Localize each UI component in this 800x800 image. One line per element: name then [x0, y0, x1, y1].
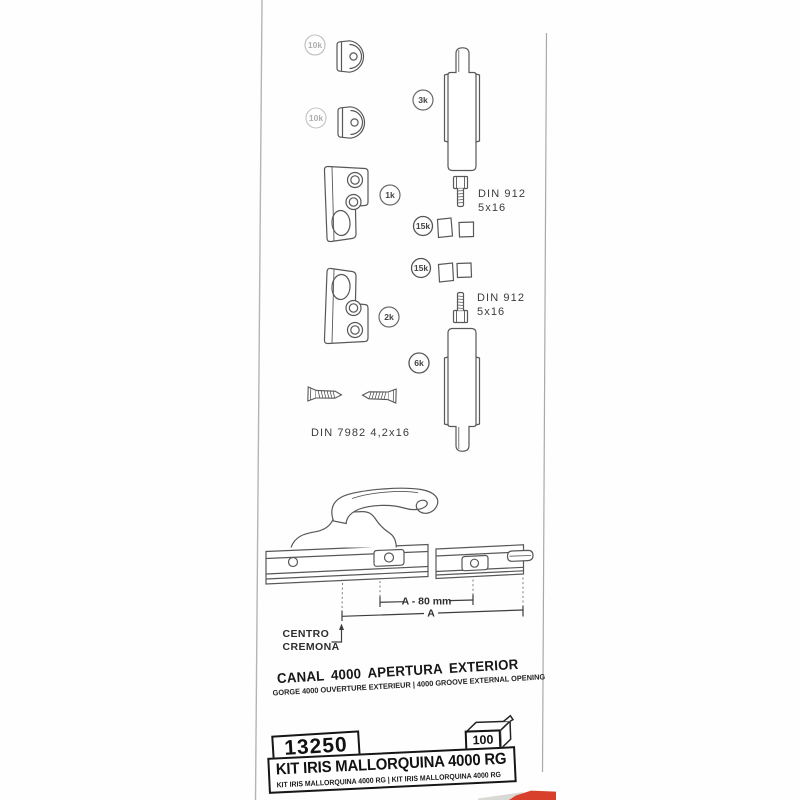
dimension-outer-text: A: [427, 608, 435, 620]
part-label-latch-upper: 3k: [418, 95, 428, 105]
card-edge-left: [256, 0, 263, 800]
dimension-inner-text: A - 80 mm: [402, 596, 452, 608]
shim-squares-row1: [438, 218, 474, 238]
din912-upper-line1: DIN 912: [478, 188, 526, 200]
part-label-keeper-lower: 2k: [384, 312, 394, 322]
part-label-shims-lower: 15k: [414, 263, 429, 273]
handle-assembly-drawing: [266, 488, 533, 584]
screw-left: [308, 387, 342, 402]
latch-part-lower: [445, 329, 480, 452]
bolt-din912-lower: [454, 293, 468, 323]
reference-label-line2: CREMONA: [283, 641, 340, 653]
part-label-endcap-bottom: 10k: [309, 113, 324, 123]
carton-qty: 100: [472, 733, 493, 748]
keeper-part-upper: [324, 166, 368, 241]
part-label-shims-upper: 15k: [416, 221, 431, 231]
endcap-part-bottom: [338, 107, 365, 138]
packaging-photo: 10k 10k 3k 1k 15k 15k 2k 6k DIN 912 5x16…: [0, 0, 800, 800]
latch-part-upper: [445, 48, 480, 171]
part-label-latch-lower: 6k: [414, 358, 424, 368]
part-label-endcap-top: 10k: [308, 40, 323, 50]
screw-right: [362, 388, 396, 403]
part-labels: 10k 10k 3k 1k 15k 15k 2k 6k: [305, 35, 433, 373]
keeper-part-lower: [324, 268, 368, 343]
reference-arrowhead: [339, 624, 344, 631]
din912-lower-line1: DIN 912: [477, 292, 525, 304]
din912-upper-line2: 5x16: [478, 202, 506, 214]
bolt-din912-upper: [454, 177, 468, 207]
part-label-keeper-upper: 1k: [385, 190, 395, 200]
din912-lower-line2: 5x16: [477, 306, 505, 318]
endcap-part-top: [337, 41, 364, 72]
din7982-note: DIN 7982 4,2x16: [311, 427, 410, 439]
shim-squares-row2: [439, 263, 472, 282]
reference-label-line1: CENTRO: [283, 628, 330, 640]
card-edge-right: [543, 33, 547, 772]
